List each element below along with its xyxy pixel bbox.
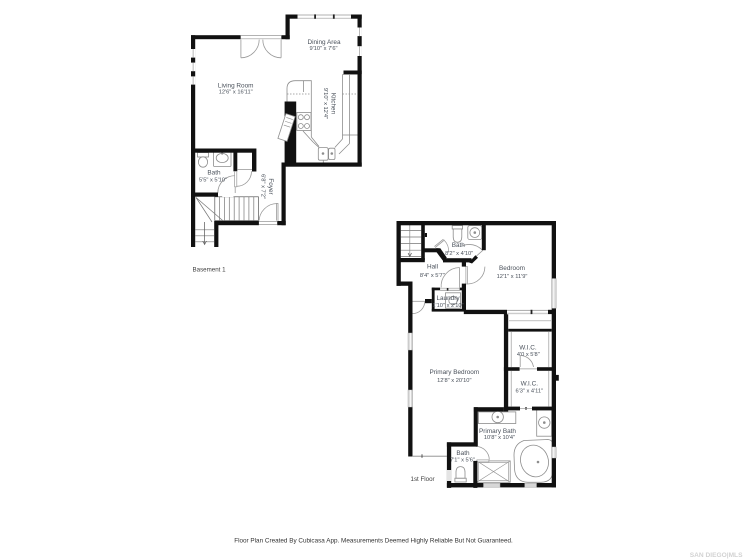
svg-text:W.I.C.: W.I.C. — [521, 381, 539, 388]
svg-text:Bath: Bath — [456, 450, 470, 457]
svg-text:Primary Bedroom: Primary Bedroom — [429, 369, 479, 376]
svg-text:Laundry: Laundry — [436, 295, 460, 302]
svg-text:8'4" x 5'7": 8'4" x 5'7" — [420, 273, 445, 279]
svg-text:Bath: Bath — [452, 242, 466, 249]
svg-text:W.I.C.: W.I.C. — [519, 344, 537, 351]
svg-text:Hall: Hall — [427, 264, 438, 271]
svg-text:7'1" x 5'6": 7'1" x 5'6" — [450, 458, 475, 464]
svg-text:9'10" x 7'6": 9'10" x 7'6" — [309, 46, 337, 52]
svg-text:Dining Area: Dining Area — [307, 39, 340, 46]
svg-text:Primary Bath: Primary Bath — [479, 428, 516, 435]
svg-text:SAN DIEGO|MLS: SAN DIEGO|MLS — [690, 552, 743, 559]
svg-text:1'10" x 2'10": 1'10" x 2'10" — [432, 303, 463, 309]
svg-text:5'5" x 5'10": 5'5" x 5'10" — [199, 178, 227, 184]
svg-text:12'1" x 11'9": 12'1" x 11'9" — [497, 274, 528, 280]
svg-text:Bedroom: Bedroom — [499, 265, 525, 272]
svg-text:4'0 x 5'8": 4'0 x 5'8" — [517, 352, 540, 358]
svg-text:12'8" x 20'10": 12'8" x 20'10" — [437, 378, 471, 384]
svg-text:1st Floor: 1st Floor — [411, 476, 435, 483]
svg-text:8'2" x 4'10": 8'2" x 4'10" — [445, 251, 473, 257]
svg-text:10'8" x 10'4": 10'8" x 10'4" — [484, 435, 515, 441]
svg-text:Living Room: Living Room — [218, 83, 254, 90]
svg-text:6'3" x 4'11": 6'3" x 4'11" — [515, 388, 543, 394]
svg-text:Basement 1: Basement 1 — [193, 267, 227, 274]
svg-text:Bath: Bath — [207, 169, 221, 176]
svg-text:12'6" x 16'11": 12'6" x 16'11" — [219, 90, 253, 96]
svg-text:Floor Plan Created By Cubicasa: Floor Plan Created By Cubicasa App. Meas… — [234, 538, 513, 545]
